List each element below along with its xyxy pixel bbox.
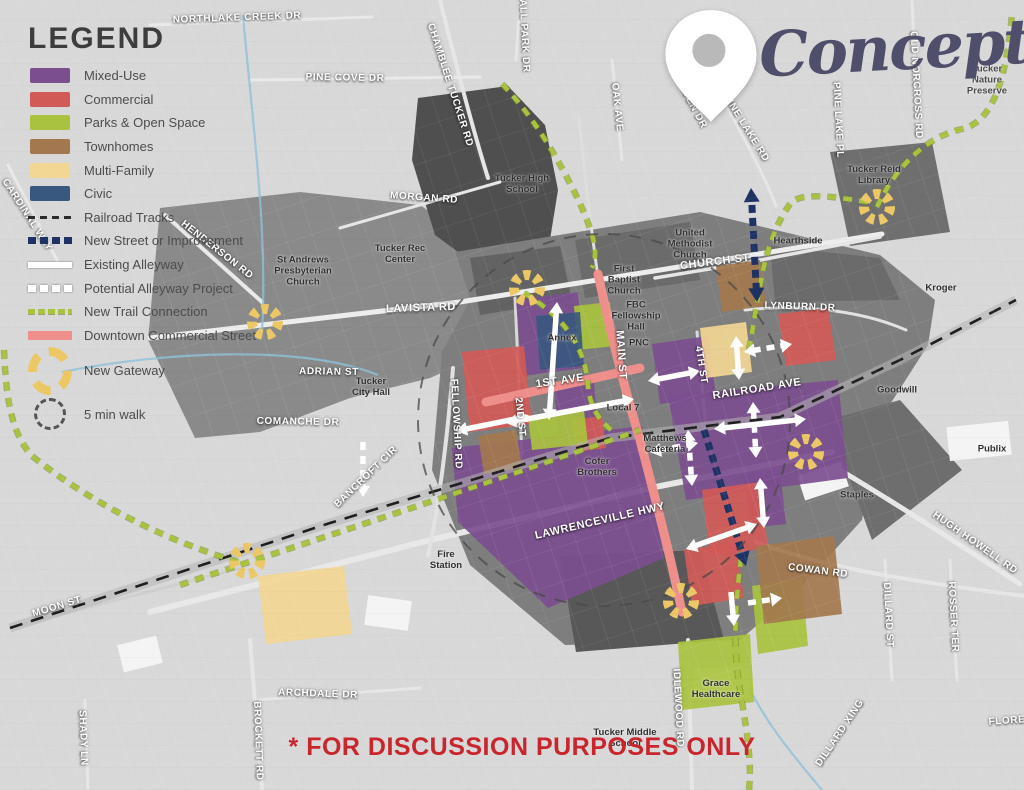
legend-item-label: 5 min walk	[84, 407, 145, 422]
legend-item-label: Multi-Family	[84, 163, 154, 178]
road-line	[255, 688, 420, 700]
road-line	[612, 60, 622, 160]
new-street-arrow-head	[744, 188, 760, 202]
legend-swatch-icon	[28, 92, 72, 107]
legend-item-civic: Civic	[28, 182, 278, 206]
zone-townhomes	[756, 536, 842, 624]
road-line	[85, 700, 88, 790]
road-line	[250, 77, 480, 80]
existing-alleyway-arrow	[737, 345, 739, 371]
legend-wsolid-icon	[28, 262, 72, 268]
concept-map-canvas: NORTHLAKE CREEK DRPINE COVE DRCHAMBLEE T…	[0, 0, 1024, 790]
trail-outline	[877, 14, 1012, 207]
legend-panel: LEGEND Mixed-UseCommercialParks & Open S…	[28, 22, 278, 434]
building	[117, 636, 163, 673]
road-line	[250, 640, 262, 790]
existing-alleyway-arrow	[761, 487, 764, 519]
legend-item-label: Parks & Open Space	[84, 115, 205, 130]
legend-items: Mixed-UseCommercialParks & Open SpaceTow…	[28, 64, 278, 434]
legend-swatch-icon	[28, 139, 72, 154]
legend-item-multi-family: Multi-Family	[28, 158, 278, 182]
aerial-dark-area	[830, 142, 950, 246]
new-street-arrow	[752, 199, 757, 291]
legend-rail-icon	[28, 216, 72, 219]
legend-gateway-icon	[28, 347, 72, 395]
legend-swatch-icon	[28, 68, 72, 83]
legend-item-label: New Trail Connection	[84, 304, 208, 319]
creek-line	[742, 672, 822, 790]
legend-item-label: Civic	[84, 186, 112, 201]
legend-item-parks-open-space: Parks & Open Space	[28, 111, 278, 135]
zone-commercial	[778, 308, 836, 366]
potential-alleyway-arrow-head	[356, 486, 370, 497]
legend-item-potential-alleyway-project: Potential Alleyway Project	[28, 276, 278, 300]
legend-item-label: Commercial	[84, 92, 153, 107]
road-line	[702, 62, 776, 206]
legend-navy-icon	[28, 237, 72, 244]
existing-alleyway-arrow	[731, 592, 733, 617]
legend-item-label: Existing Alleyway	[84, 257, 184, 272]
legend-item-railroad-tracks: Railroad Tracks	[28, 206, 278, 230]
legend-item-existing-alleyway: Existing Alleyway	[28, 253, 278, 277]
building	[946, 421, 1011, 461]
legend-item-label: New Street or Improvement	[84, 233, 243, 248]
road-line	[950, 560, 957, 680]
legend-item-mixed-use: Mixed-Use	[28, 64, 278, 88]
legend-trail-icon	[28, 309, 72, 314]
legend-item-downtown-commercial-street: Downtown Commercial Street	[28, 324, 278, 348]
legend-swatch-icon	[28, 115, 72, 130]
legend-item-new-street-or-improvement: New Street or Improvement	[28, 229, 278, 253]
zone-multi-family	[258, 566, 352, 644]
legend-item-5-min-walk: 5 min walk	[28, 394, 278, 434]
building	[364, 595, 412, 631]
legend-item-new-trail-connection: New Trail Connection	[28, 300, 278, 324]
legend-item-new-gateway: New Gateway	[28, 347, 278, 394]
disclaimer-text: * FOR DISCUSSION PURPOSES ONLY	[289, 733, 756, 762]
legend-wdash-icon	[28, 285, 72, 292]
legend-item-label: Downtown Commercial Street	[84, 328, 256, 343]
road-line	[912, 0, 918, 140]
legend-item-label: Townhomes	[84, 139, 153, 154]
legend-item-commercial: Commercial	[28, 88, 278, 112]
road-line	[516, 0, 520, 60]
legend-swatch-icon	[28, 186, 72, 201]
legend-pink-icon	[28, 331, 72, 340]
legend-walk-icon	[28, 398, 72, 430]
potential-alleyway-arrow	[753, 411, 755, 449]
legend-item-townhomes: Townhomes	[28, 135, 278, 159]
legend-item-label: New Gateway	[84, 363, 165, 378]
legend-item-label: Mixed-Use	[84, 68, 146, 83]
legend-swatch-icon	[28, 163, 72, 178]
legend-item-label: Potential Alleyway Project	[84, 281, 233, 296]
zone-parks-open-space	[678, 634, 754, 710]
legend-item-label: Railroad Tracks	[84, 210, 174, 225]
legend-heading: LEGEND	[28, 22, 278, 56]
